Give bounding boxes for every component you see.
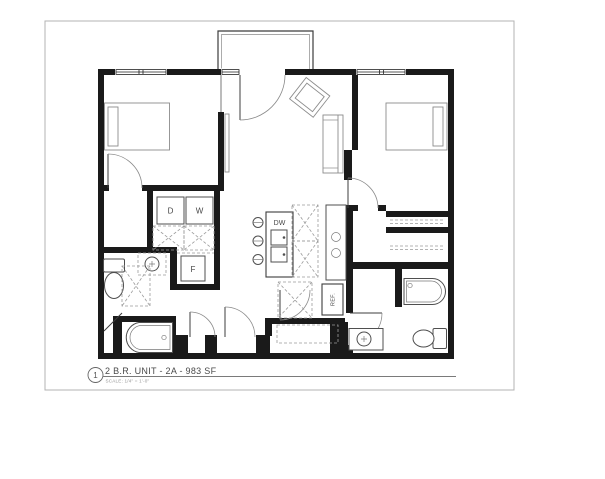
title-block: 1 2 B.R. UNIT - 2A - 983 SF SCALE: 1/4" … — [88, 366, 456, 384]
pantry-door — [280, 290, 310, 320]
upper-cabinets-dashed — [292, 205, 318, 277]
dishwasher-label: DW — [274, 220, 286, 227]
entry-closet-shelf-dashed — [277, 325, 338, 343]
drawing-sheet: D W F — [0, 0, 605, 479]
callout-number: 1 — [93, 371, 98, 380]
range-counter — [326, 205, 346, 280]
dryer-label: D — [168, 207, 174, 216]
sofa — [323, 115, 343, 173]
media-console — [225, 114, 229, 172]
bathtub-left — [126, 323, 172, 353]
clearance-dashed — [122, 266, 150, 306]
washer-label: W — [196, 207, 204, 216]
hall-door-left — [190, 312, 215, 337]
scale-note: SCALE: 1/4" = 1'-0" — [106, 379, 150, 384]
bar-stools — [253, 218, 263, 265]
furnace-closet: F — [177, 253, 214, 281]
accent-chair — [290, 78, 330, 118]
laundry-closet: D W — [153, 197, 214, 250]
floor-plan-drawing: D W F — [0, 0, 605, 479]
bathtub-right — [404, 279, 446, 305]
drawing-title: 2 B.R. UNIT - 2A - 983 SF — [105, 366, 217, 376]
vanity-sink-right — [349, 329, 383, 351]
bedroom-left-door — [108, 154, 142, 188]
bedroom-right-door — [348, 178, 378, 208]
bed-right — [386, 103, 447, 150]
pantry-cabinet-dashed — [278, 282, 312, 318]
balcony-door — [240, 75, 285, 120]
toilet-right — [413, 329, 447, 349]
kitchen-island: DW — [266, 212, 293, 277]
refrigerator: REF. — [322, 284, 343, 315]
entry-door — [225, 307, 255, 337]
furnace-label: F — [191, 265, 196, 274]
bed-left — [105, 103, 170, 150]
balcony — [218, 31, 313, 69]
closet-rods-dashed — [390, 220, 445, 250]
vanity-sink-left — [138, 253, 166, 275]
toilet-left — [104, 259, 125, 299]
refrigerator-label: REF. — [331, 293, 337, 306]
laundry-bifold-doors — [153, 226, 214, 250]
